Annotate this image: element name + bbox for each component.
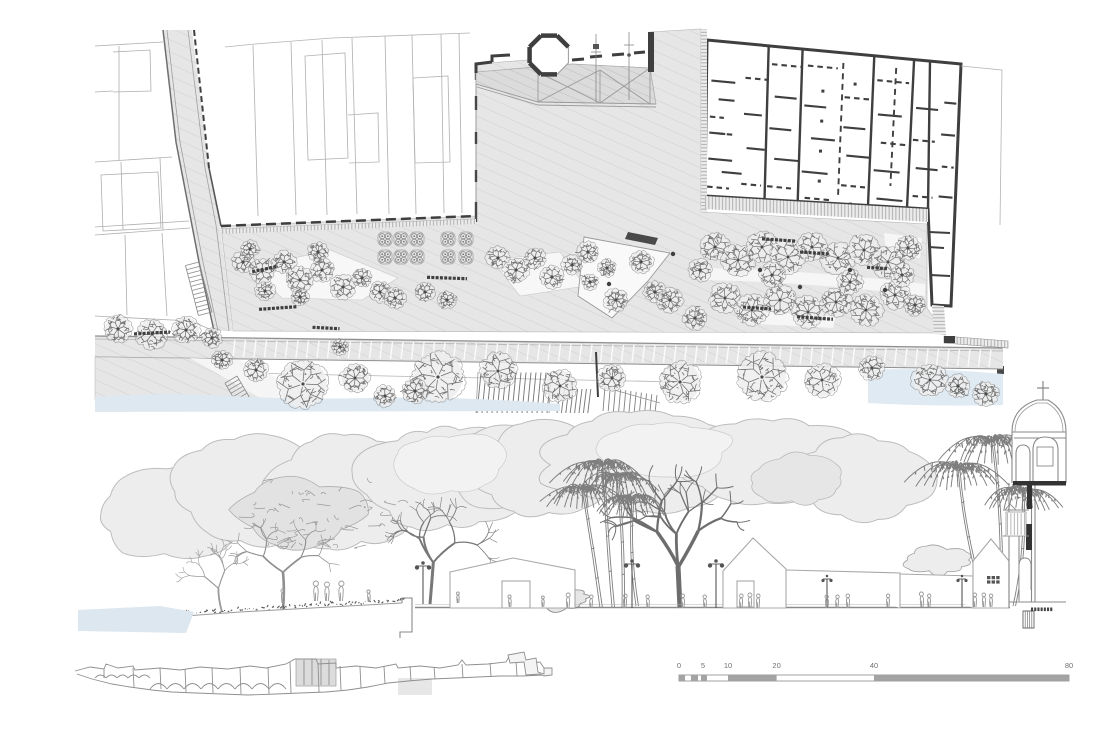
svg-text:80: 80: [1065, 661, 1073, 670]
svg-text:20: 20: [772, 661, 780, 670]
svg-text:10: 10: [724, 661, 732, 670]
svg-text:5: 5: [701, 661, 705, 670]
svg-text:40: 40: [870, 661, 878, 670]
svg-text:0: 0: [677, 661, 681, 670]
